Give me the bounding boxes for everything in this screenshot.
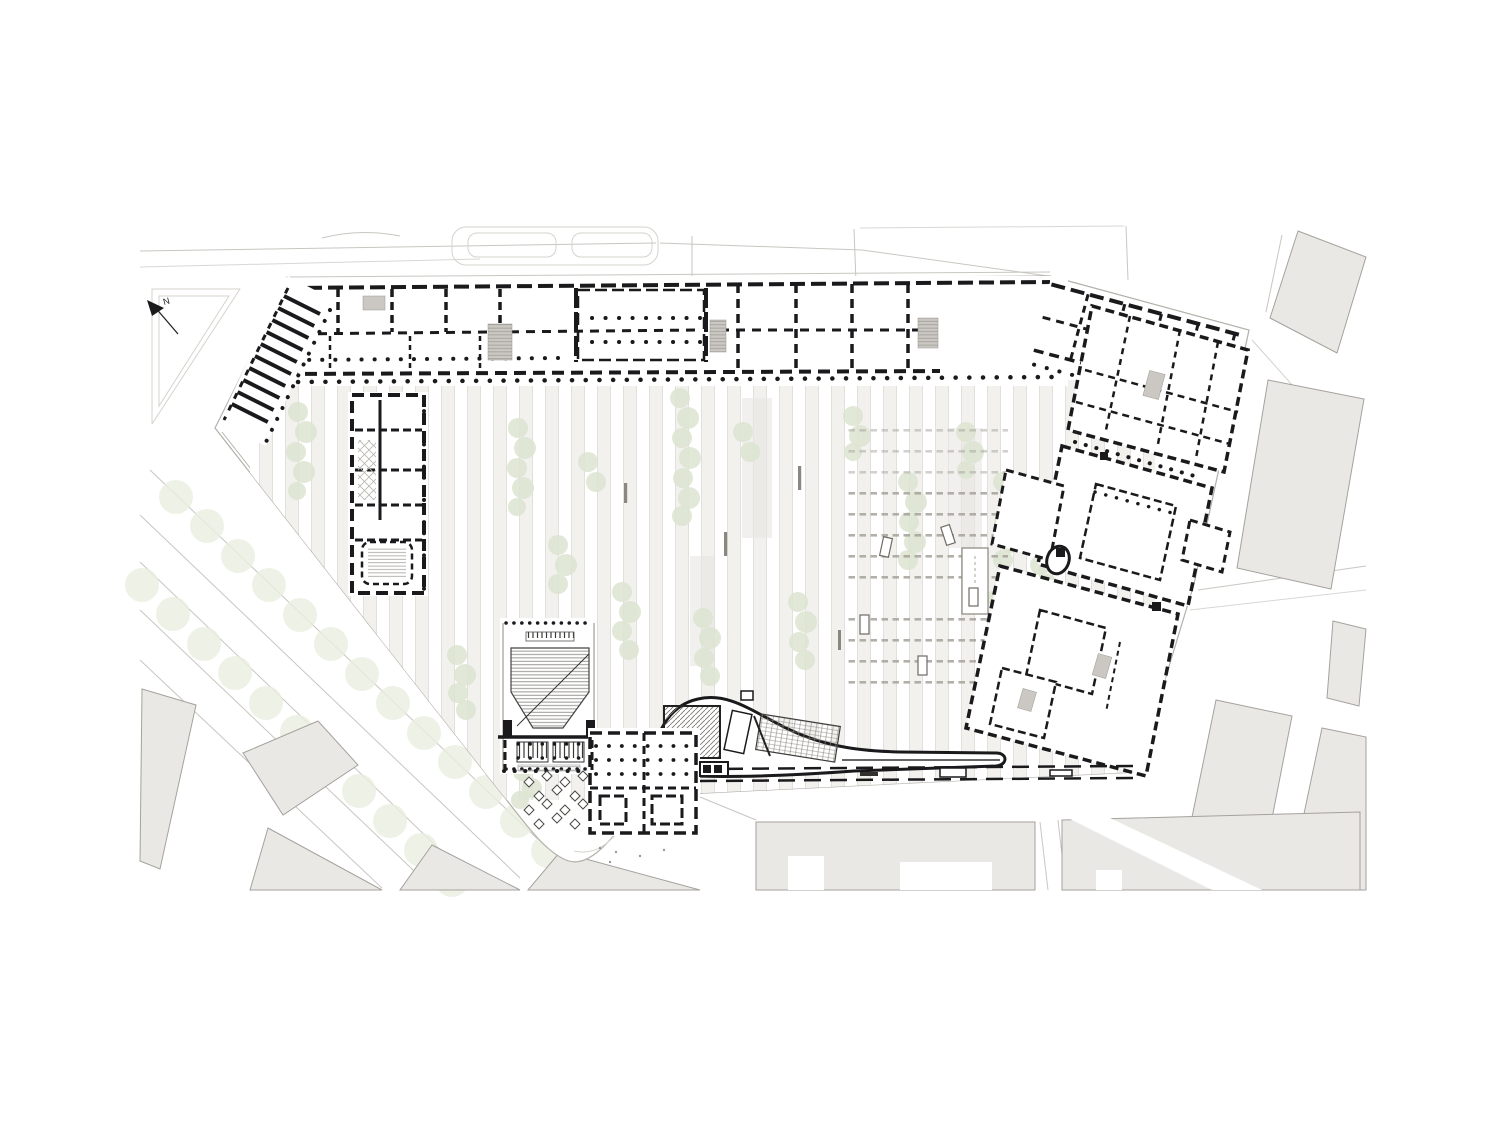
context-building [1237, 380, 1364, 589]
context-building [140, 689, 196, 869]
auditorium [498, 618, 600, 774]
west-pavilion-building [348, 392, 428, 596]
site-plan-page: N [0, 0, 1500, 1125]
north-label: N [162, 296, 171, 307]
context-building [1270, 231, 1366, 353]
context-building [250, 828, 382, 890]
context-building [1327, 621, 1366, 706]
main-building-north-wing [286, 272, 1068, 386]
vehicle [918, 656, 927, 675]
vehicle [969, 588, 978, 606]
vehicle [860, 615, 869, 634]
site-plan-drawing: N [0, 0, 1500, 1125]
